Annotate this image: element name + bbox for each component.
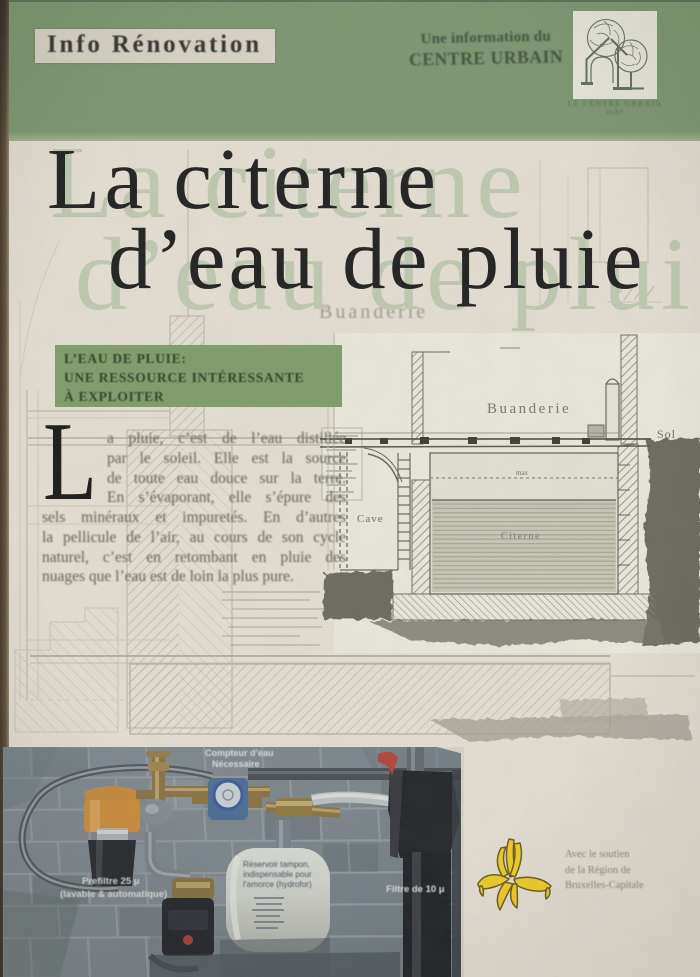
svg-text:Cave: Cave bbox=[357, 513, 384, 525]
svg-text:max: max bbox=[516, 469, 529, 477]
svg-text:Buanderie: Buanderie bbox=[487, 401, 571, 417]
svg-text:Sol: Sol bbox=[657, 427, 676, 441]
svg-text:Citerne: Citerne bbox=[501, 531, 541, 542]
